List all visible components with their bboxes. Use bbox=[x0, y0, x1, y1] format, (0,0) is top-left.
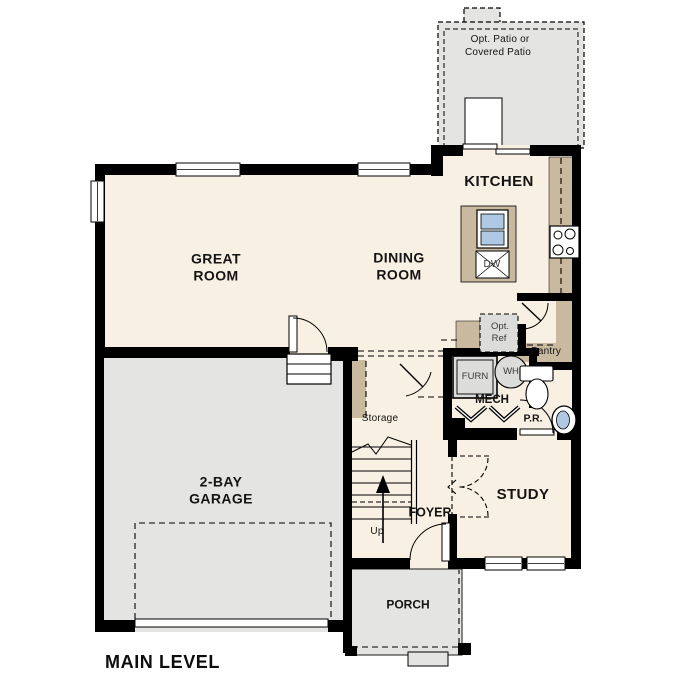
mech-label: MECH bbox=[475, 394, 509, 406]
pantry-label: Pantry bbox=[531, 347, 561, 358]
front-door-leaf bbox=[442, 523, 450, 561]
water-heater-label: WH bbox=[503, 367, 519, 377]
patio-step bbox=[465, 98, 502, 146]
garage-entry-steps bbox=[287, 354, 331, 384]
pr-door-leaf bbox=[520, 429, 554, 435]
foyer-label: FOYER bbox=[408, 506, 451, 519]
sliding-door-panel-2 bbox=[496, 149, 530, 154]
garage-label-line2: GARAGE bbox=[189, 492, 253, 507]
patio-label-line2: Covered Patio bbox=[465, 48, 531, 59]
porch-step bbox=[408, 652, 448, 666]
opt-ref-counter bbox=[456, 321, 480, 351]
study-label: STUDY bbox=[497, 487, 550, 503]
garage-door bbox=[135, 619, 328, 627]
floor-plan-drawing bbox=[0, 0, 687, 687]
porch-floor bbox=[350, 569, 462, 655]
storage-shelf bbox=[352, 360, 366, 418]
dishwasher-label: DW bbox=[483, 260, 500, 271]
great-room-label-line2: ROOM bbox=[193, 269, 238, 284]
opt-ref-label-line1: Opt. bbox=[491, 322, 509, 332]
opt-ref-label-line2: Ref bbox=[492, 334, 507, 344]
powder-room-label: P.R. bbox=[523, 413, 542, 424]
dining-room-label-line2: ROOM bbox=[376, 268, 421, 283]
storage-label: Storage bbox=[362, 414, 398, 425]
dining-room-label-line1: DINING bbox=[373, 251, 424, 266]
furnace-label: FURN bbox=[462, 372, 488, 382]
toilet-bowl bbox=[526, 379, 548, 409]
garage-label-line1: 2-BAY bbox=[200, 475, 243, 490]
porch-label: PORCH bbox=[386, 599, 429, 612]
patio-area bbox=[438, 8, 584, 148]
stairs-up-label: Up bbox=[370, 527, 383, 538]
kitchen-label: KITCHEN bbox=[464, 174, 533, 190]
great-room-label-line1: GREAT bbox=[191, 252, 241, 267]
patio-label-line1: Opt. Patio or bbox=[471, 35, 530, 46]
plan-title: MAIN LEVEL bbox=[105, 652, 220, 673]
floor-plan: Opt. Patio or Covered Patio KITCHEN GREA… bbox=[0, 0, 687, 687]
sliding-door-panel-1 bbox=[463, 144, 497, 149]
